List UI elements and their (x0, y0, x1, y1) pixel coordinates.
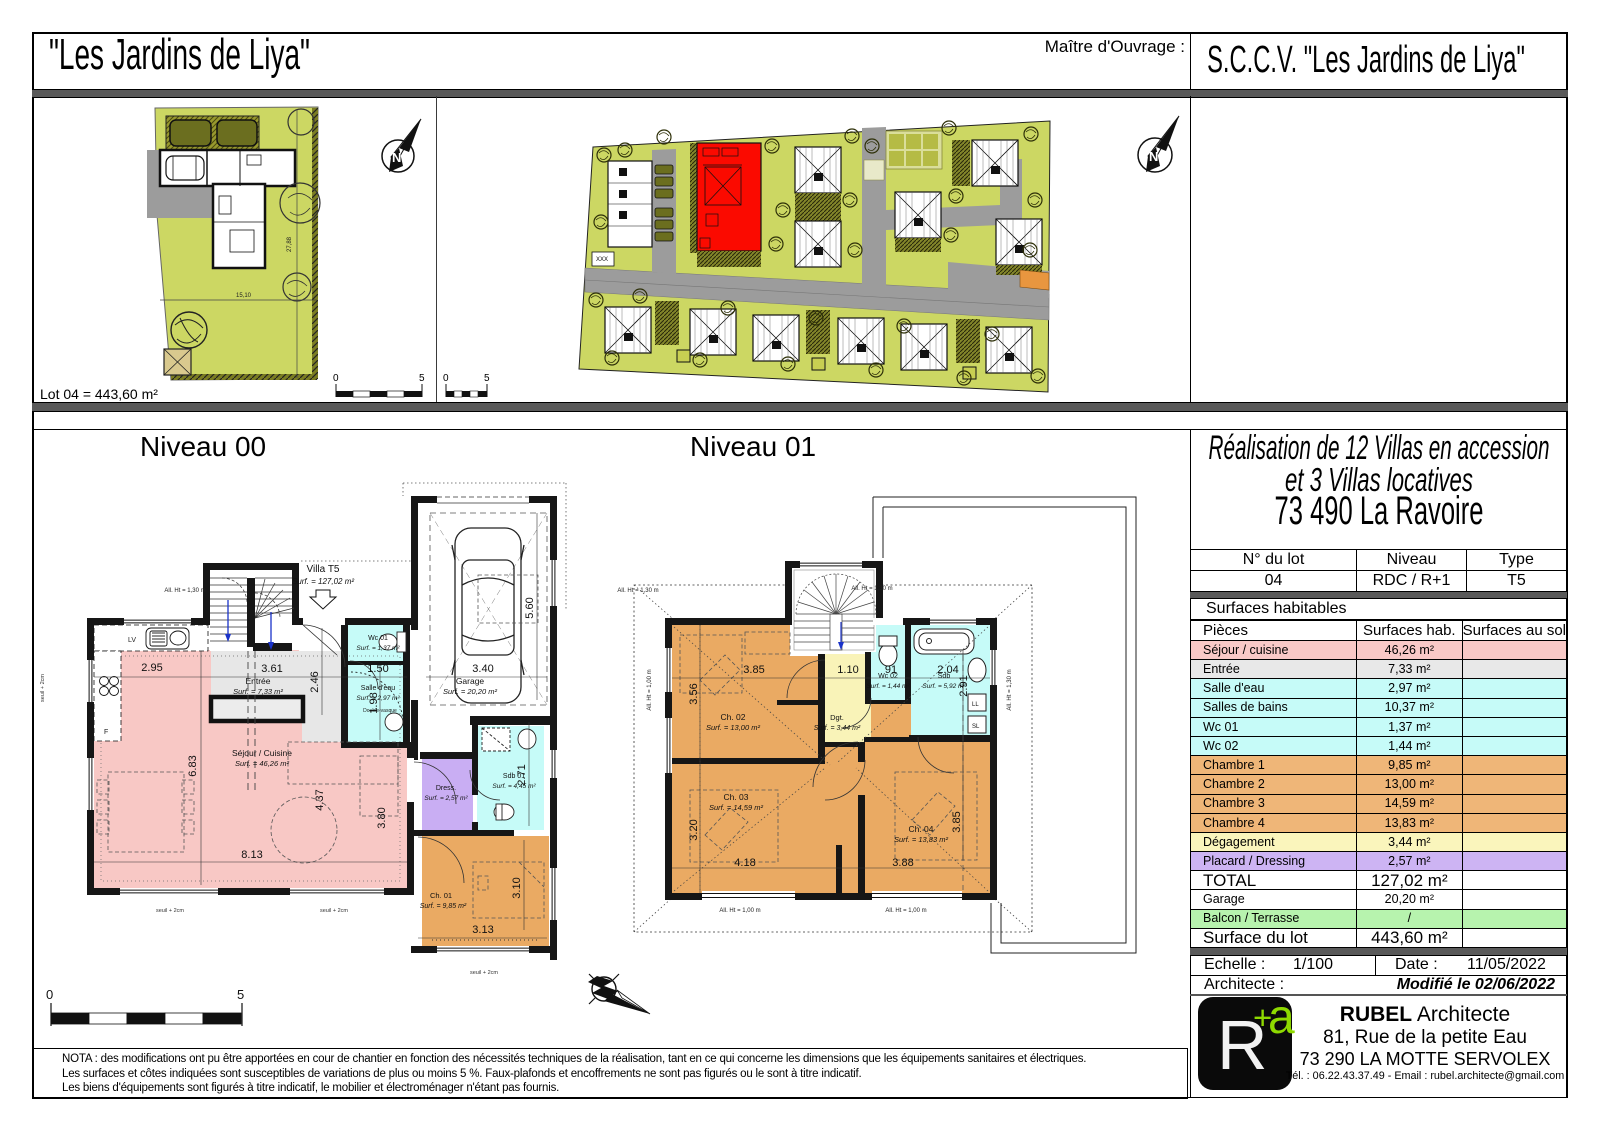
svg-text:seuil + 2cm: seuil + 2cm (470, 970, 498, 976)
svg-text:Sdb: Sdb (938, 673, 951, 680)
svg-text:Surf. = 20,20 m²: Surf. = 20,20 m² (443, 687, 497, 696)
svg-text:seuil + 2cm: seuil + 2cm (40, 674, 46, 702)
svg-text:Surf. = 14,59 m²: Surf. = 14,59 m² (709, 803, 763, 812)
svg-text:SL: SL (972, 724, 980, 730)
svg-text:Surf. = 1,37 m²: Surf. = 1,37 m² (356, 645, 400, 652)
svg-text:4.37: 4.37 (314, 789, 326, 810)
svg-text:All. Ht = 1,30 m: All. Ht = 1,30 m (617, 588, 658, 594)
svg-text:F: F (104, 729, 108, 736)
svg-text:0: 0 (46, 987, 53, 1002)
svg-text:3.40: 3.40 (472, 663, 493, 675)
svg-text:Salle d'eau: Salle d'eau (361, 685, 396, 692)
svg-text:Surf. = 4,45 m²: Surf. = 4,45 m² (492, 783, 536, 790)
svg-text:Surf. = 9,85 m²: Surf. = 9,85 m² (420, 903, 467, 910)
svg-text:27,88: 27,88 (287, 236, 293, 252)
svg-text:4.18: 4.18 (734, 857, 755, 869)
svg-text:seuil + 2cm: seuil + 2cm (156, 908, 184, 914)
svg-text:All. Ht = 1,00 m: All. Ht = 1,00 m (885, 908, 926, 914)
svg-text:3.20: 3.20 (688, 819, 700, 840)
svg-text:Surf. = 7,33 m²: Surf. = 7,33 m² (233, 687, 283, 696)
svg-text:LV: LV (128, 637, 136, 644)
svg-text:6.83: 6.83 (187, 755, 199, 776)
svg-text:Surf. = 2,57 m²: Surf. = 2,57 m² (424, 795, 468, 802)
svg-text:3.85: 3.85 (743, 664, 764, 676)
svg-text:seuil + 2cm: seuil + 2cm (320, 908, 348, 914)
svg-text:Dress.: Dress. (436, 785, 456, 792)
svg-text:1.10: 1.10 (837, 664, 858, 676)
svg-text:2.95: 2.95 (141, 662, 162, 674)
svg-text:Ch. 04: Ch. 04 (908, 824, 933, 834)
svg-text:Surf. = 13,00 m²: Surf. = 13,00 m² (706, 723, 760, 732)
svg-text:Surf. = 3,44 m²: Surf. = 3,44 m² (814, 725, 861, 732)
svg-text:Villa T5: Villa T5 (307, 564, 340, 575)
svg-text:5.60: 5.60 (524, 597, 536, 618)
svg-text:1.50: 1.50 (367, 663, 388, 675)
svg-text:Surf. = 5,92 m²: Surf. = 5,92 m² (922, 683, 966, 690)
svg-text:0: 0 (333, 373, 339, 384)
svg-text:Surf. = 13,83 m²: Surf. = 13,83 m² (894, 835, 948, 844)
svg-text:Ch. 02: Ch. 02 (720, 712, 745, 722)
svg-text:3.10: 3.10 (511, 877, 523, 898)
svg-text:3.61: 3.61 (261, 663, 282, 675)
svg-text:3.13: 3.13 (472, 924, 493, 936)
svg-text:Séjour / Cuisine: Séjour / Cuisine (232, 748, 292, 758)
svg-text:All. Ht = 1,30 m: All. Ht = 1,30 m (164, 588, 205, 594)
svg-text:3.88: 3.88 (892, 857, 913, 869)
svg-text:3.80: 3.80 (376, 807, 388, 828)
svg-text:Surf. = 127,02 m²: Surf. = 127,02 m² (292, 577, 354, 586)
svg-text:All. Ht = 1,00 m: All. Ht = 1,00 m (719, 908, 760, 914)
svg-text:LL: LL (972, 702, 979, 708)
svg-text:Surf. = 46,26 m²: Surf. = 46,26 m² (235, 759, 289, 768)
svg-text:All. Ht = 1,30 m: All. Ht = 1,30 m (851, 586, 892, 592)
svg-text:Ch. 01: Ch. 01 (430, 891, 452, 900)
svg-text:Wc 02: Wc 02 (878, 673, 898, 680)
svg-text:3.56: 3.56 (688, 683, 700, 704)
svg-text:N: N (1149, 149, 1158, 164)
svg-text:XXX: XXX (596, 257, 608, 263)
svg-text:Dgt.: Dgt. (830, 713, 844, 722)
svg-text:3.85: 3.85 (951, 811, 963, 832)
svg-text:2.46: 2.46 (309, 671, 321, 692)
svg-text:0: 0 (443, 373, 449, 384)
svg-text:All. Ht = 1,00 m: All. Ht = 1,00 m (647, 669, 653, 710)
svg-text:5: 5 (237, 987, 244, 1002)
svg-text:8.13: 8.13 (241, 849, 262, 861)
svg-text:All. Ht = 1,30 m: All. Ht = 1,30 m (1007, 669, 1013, 710)
svg-text:Entrée: Entrée (245, 676, 270, 686)
svg-text:Surf. = 1,44 m²: Surf. = 1,44 m² (866, 683, 910, 690)
svg-text:15,10: 15,10 (236, 293, 252, 299)
svg-text:Sdb 01: Sdb 01 (503, 773, 525, 780)
svg-text:5: 5 (419, 373, 425, 384)
svg-text:Garage: Garage (456, 676, 485, 686)
svg-text:N: N (392, 150, 401, 165)
svg-text:Ch. 03: Ch. 03 (723, 792, 748, 802)
svg-text:Wc 01: Wc 01 (368, 635, 388, 642)
svg-text:Double-vasque: Double-vasque (363, 708, 397, 714)
svg-text:Surf. = 2,97 m²: Surf. = 2,97 m² (356, 695, 400, 702)
svg-text:5: 5 (484, 373, 490, 384)
